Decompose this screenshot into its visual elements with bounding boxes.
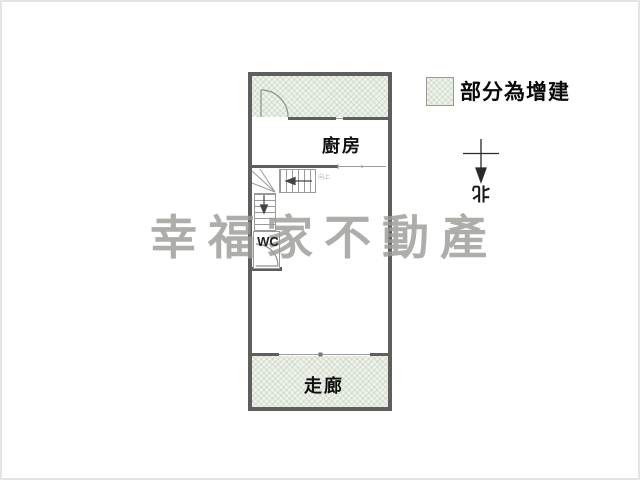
interior-wall (343, 117, 388, 120)
compass: 北 (457, 135, 505, 205)
interior-wall (252, 165, 338, 168)
interior-wall (370, 353, 388, 356)
wc-label: WC (253, 234, 283, 249)
stairs-direction-note: 向上 (318, 172, 330, 181)
watermark-text: 幸福家不動產 (150, 214, 498, 261)
interior-wall (288, 117, 336, 120)
legend: 部分為增建 (426, 76, 570, 106)
stairs-upper-run (279, 169, 316, 193)
compass-north-label: 北 (457, 181, 505, 207)
floorplan-image: 廚房 WC 走廊 向上 部分為增建 北 幸福家不動產 (0, 0, 640, 480)
legend-label: 部分為增建 (460, 76, 570, 106)
corridor-label: 走廊 (289, 372, 359, 398)
extension-swatch-icon (426, 77, 454, 106)
extension-area-top (252, 76, 388, 117)
kitchen-label: 廚房 (307, 132, 377, 158)
interior-wall (252, 353, 279, 356)
